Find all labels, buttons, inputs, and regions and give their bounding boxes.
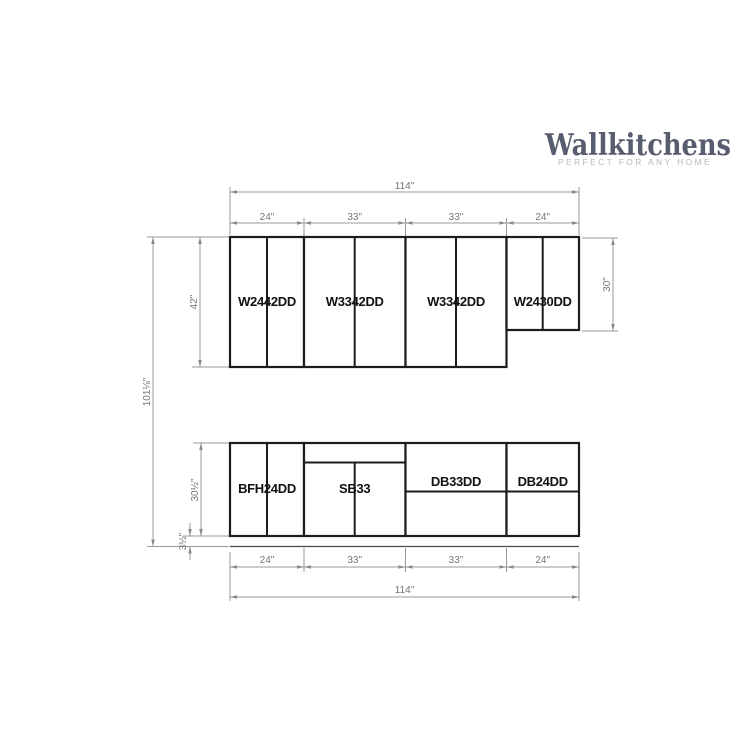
- right-dimension: 30": [582, 238, 618, 331]
- base-cabinet-label-3: DB33DD: [431, 474, 481, 489]
- bottom-dimensions: 24" 33" 33" 24" 114": [230, 548, 579, 601]
- dim-overall-height: 101⅛": [142, 377, 153, 406]
- base-cabinet-row: BFH24DD SB33 DB33DD DB24DD: [230, 443, 579, 547]
- dim-bottom-seg-1: 24": [260, 555, 275, 566]
- wall-cabinet-label-2: W3342DD: [326, 294, 384, 309]
- dim-top-total: 114": [395, 181, 415, 192]
- dim-top-seg-2: 33": [347, 212, 362, 223]
- elevation-drawing: Wallkitchens PERFECT FOR ANY HOME 114" 2…: [0, 0, 755, 755]
- dim-bottom-seg-2: 33": [347, 555, 362, 566]
- kitchen-elevation-page: Wallkitchens PERFECT FOR ANY HOME 114" 2…: [0, 0, 755, 755]
- dim-wall-height: 42": [189, 294, 200, 309]
- base-cabinet-db24dd: [507, 443, 580, 536]
- base-cabinet-label-1: BFH24DD: [238, 481, 296, 496]
- dim-top-seg-1: 24": [260, 212, 275, 223]
- top-dimensions: 114" 24" 33" 33" 24": [230, 181, 579, 236]
- dim-bottom-total: 114": [395, 585, 415, 596]
- base-cabinet-label-4: DB24DD: [518, 474, 568, 489]
- dim-bottom-seg-3: 33": [449, 555, 464, 566]
- dim-top-seg-3: 33": [449, 212, 464, 223]
- base-cabinet-label-2: SB33: [339, 481, 370, 496]
- wall-cabinet-label-3: W3342DD: [427, 294, 485, 309]
- wall-cabinet-label-4: W2430DD: [514, 294, 572, 309]
- base-cabinet-db33dd: [406, 443, 507, 536]
- dim-toe-kick: 3½": [178, 532, 189, 550]
- dim-bottom-seg-4: 24": [535, 555, 550, 566]
- wall-cabinet-row: W2442DD W3342DD W3342DD W2430DD: [230, 237, 579, 367]
- left-dimensions: 101⅛" 42" 30½" 3½": [142, 237, 229, 560]
- dim-wall-right-height: 30": [602, 277, 613, 292]
- dim-top-seg-4: 24": [535, 212, 550, 223]
- brand-logo: Wallkitchens PERFECT FOR ANY HOME: [544, 128, 731, 167]
- wall-cabinet-label-1: W2442DD: [238, 294, 296, 309]
- brand-logo-tagline: PERFECT FOR ANY HOME: [558, 158, 712, 167]
- dim-base-height: 30½": [190, 478, 201, 501]
